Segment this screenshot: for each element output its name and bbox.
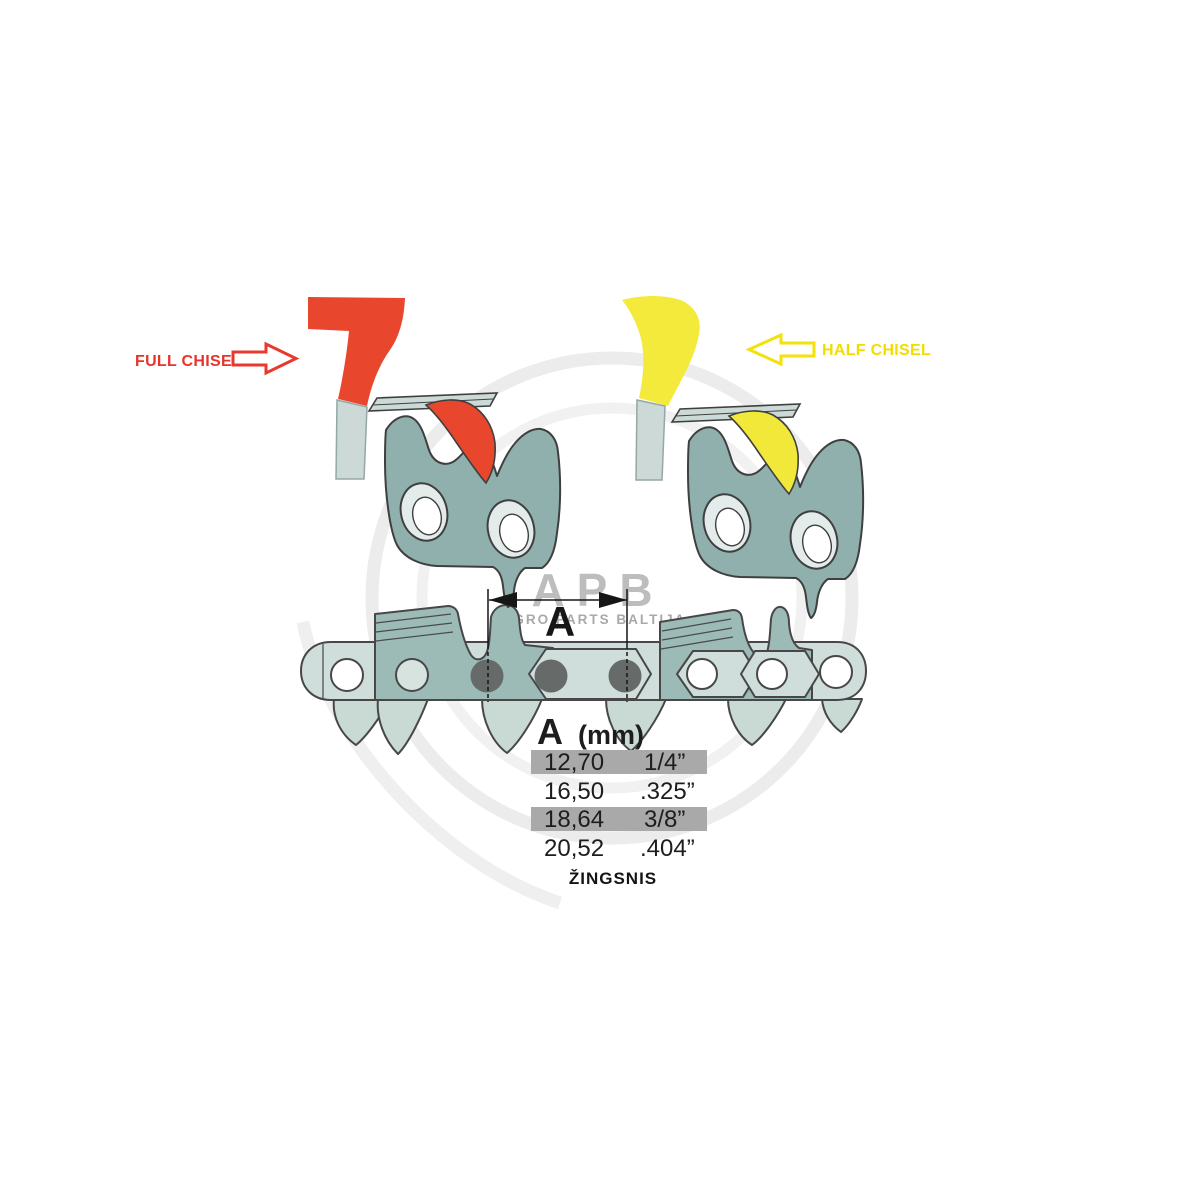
watermark-name: AGRO PARTS BALTIJA	[502, 612, 687, 627]
chainsaw-chain-pitch-diagram: APB AGRO PARTS BALTIJA FULL CHISEL HALF …	[0, 0, 1188, 1188]
chain-hole	[396, 659, 428, 691]
full-chisel-shank	[336, 400, 367, 479]
half-chisel-shank	[636, 400, 665, 480]
cell-inches: .404”	[640, 835, 695, 862]
table-header-letter: A	[537, 711, 563, 752]
cell-mm: 16,50	[544, 778, 604, 805]
chain-hole	[687, 659, 717, 689]
chain-hole	[331, 659, 363, 691]
pitch-table: A (mm) 12,70 1/4” 16,50 .325” 18,64 3/8”…	[531, 711, 707, 888]
rivet-dark	[471, 660, 504, 693]
cell-inches: 1/4”	[644, 749, 685, 776]
table-caption: ŽINGSNIS	[569, 869, 657, 888]
cell-inches: 3/8”	[644, 806, 685, 833]
dimension-label: A	[545, 598, 575, 645]
cell-inches: .325”	[640, 778, 695, 805]
rivet-dark	[535, 660, 568, 693]
table-header-unit: (mm)	[578, 720, 644, 750]
full-chisel-shape	[308, 297, 405, 406]
chain-hole	[820, 656, 852, 688]
cell-mm: 20,52	[544, 835, 604, 862]
half-chisel-arrow-icon	[749, 335, 814, 364]
half-chisel-label: HALF CHISEL	[822, 342, 931, 359]
half-chisel-shape	[622, 296, 700, 406]
rivet-dark	[609, 660, 642, 693]
cell-mm: 18,64	[544, 806, 604, 833]
diagram-canvas: APB AGRO PARTS BALTIJA FULL CHISEL HALF …	[0, 0, 1188, 1188]
cutter-link-half-chisel	[672, 404, 863, 618]
chain-hole	[757, 659, 787, 689]
full-chisel-label: FULL CHISEL	[135, 353, 242, 370]
cell-mm: 12,70	[544, 749, 604, 776]
full-chisel-arrow-icon	[233, 344, 296, 373]
